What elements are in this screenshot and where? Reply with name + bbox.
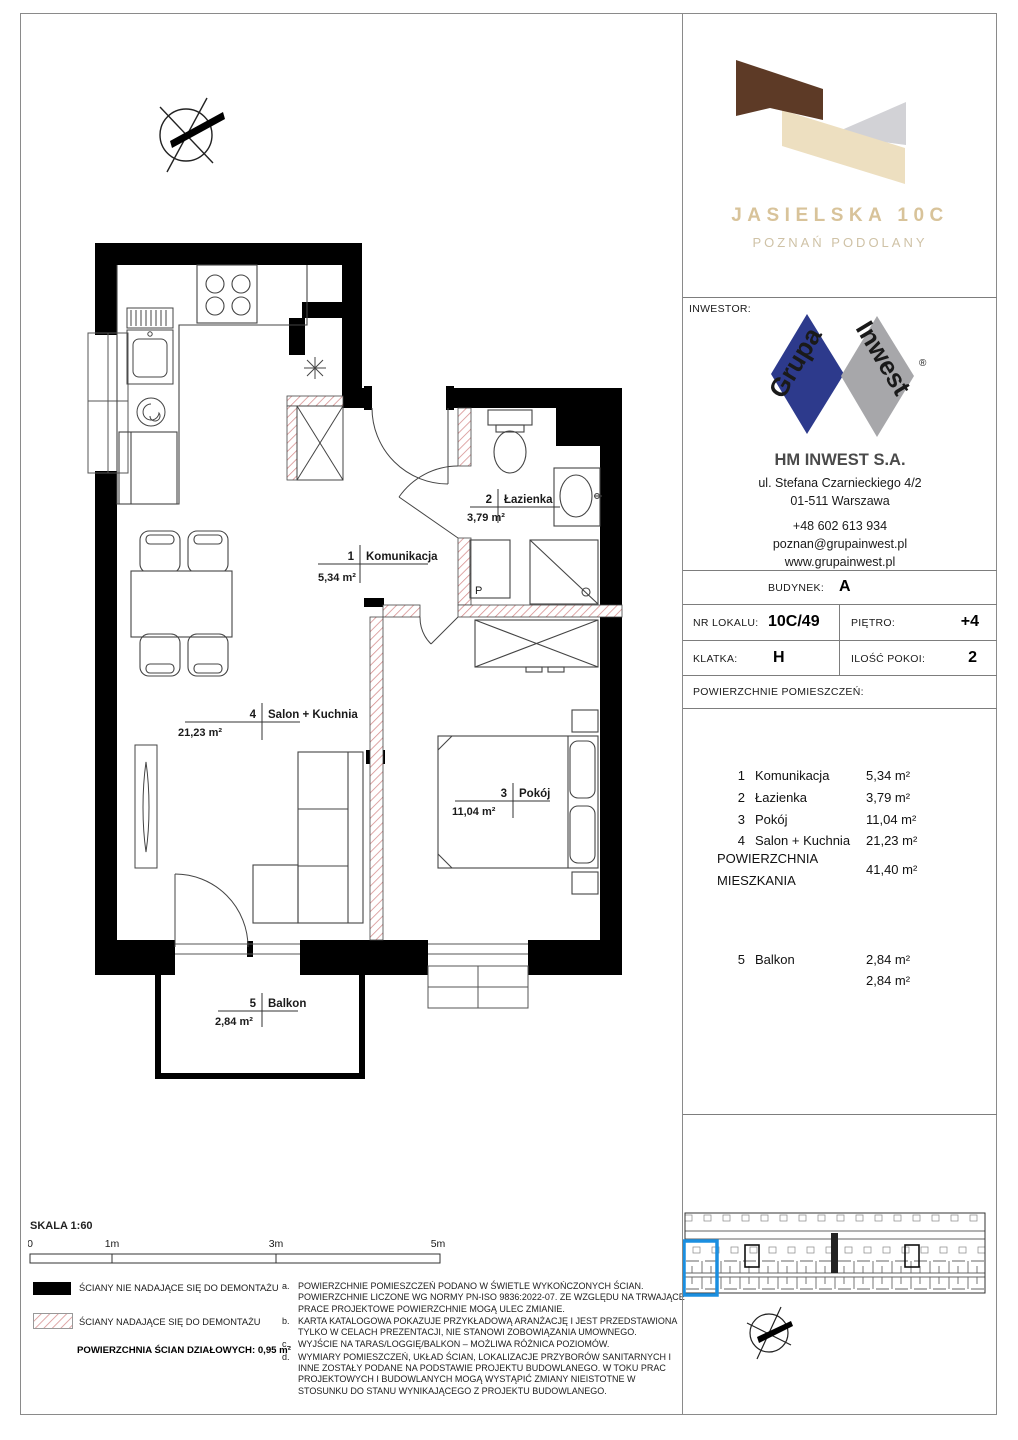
- nr-lokalu-label: NR LOKALU:: [693, 617, 758, 629]
- scale-label: SKALA 1:60: [30, 1220, 93, 1232]
- footnote-text: KARTA KATALOGOWA POKAZUJE PRZYKŁADOWĄ AR…: [298, 1316, 686, 1339]
- row-lokal-pietro: NR LOKALU: 10C/49 PIĘTRO: +4: [683, 604, 997, 640]
- label-komunikacja: 1 Komunikacja 5,34 m²: [318, 545, 438, 584]
- project-title: JASIELSKA 10C: [683, 205, 997, 227]
- wardrobe: [475, 620, 598, 672]
- footnote: a.POWIERZCHNIE POMIESZCZEŃ PODANO W ŚWIE…: [282, 1281, 686, 1315]
- balcony-row: 5Balkon 2,84 m²: [683, 952, 997, 967]
- legend-partition-label: POWIERZCHNIA ŚCIAN DZIAŁOWYCH: 0,95 m²: [77, 1345, 292, 1356]
- entry-wardrobe: [297, 406, 343, 480]
- legend-solid-swatch: [33, 1282, 71, 1295]
- info-column: JASIELSKA 10C POZNAŃ PODOLANY INWESTOR: …: [682, 13, 997, 1415]
- bed: [438, 710, 598, 894]
- plan-room-area: 2,84 m²: [215, 1016, 253, 1028]
- washing-machine-icon: P: [470, 540, 510, 598]
- room-no: 5: [683, 952, 755, 967]
- project-subtitle: POZNAŃ PODOLANY: [683, 235, 997, 250]
- plan-room-name: Pokój: [519, 788, 550, 800]
- scale-bar: 0 1m 3m 5m: [28, 1236, 448, 1268]
- walls-hatched: [287, 396, 622, 940]
- stove-icon: [197, 265, 257, 323]
- pietro-value: +4: [961, 613, 979, 631]
- row-klatka-pokoje: KLATKA: H ILOŚĆ POKOI: 2: [683, 640, 997, 675]
- room-area: 21,23 m²: [866, 833, 917, 848]
- klatka-label: KLATKA:: [693, 653, 738, 665]
- catalog-card: P 1 Komunikacja 5,34 m² 2 Łazienka 3,79 …: [0, 0, 1018, 1440]
- label-salon: 4 Salon + Kuchnia 21,23 m²: [178, 703, 358, 740]
- north-compass-icon: [160, 98, 225, 172]
- ilosc-pokoi-value: 2: [968, 649, 977, 667]
- room-area: 11,04 m²: [866, 812, 916, 827]
- room-no: 2: [683, 790, 755, 805]
- label-pokoj: 3 Pokój 11,04 m²: [452, 783, 550, 818]
- total-label-1: POWIERZCHNIA: [717, 851, 818, 866]
- room-list-row: 3Pokój 11,04 m²: [683, 812, 997, 827]
- ceiling-light-icon: [304, 357, 326, 379]
- plan-room-area: 3,79 m²: [467, 512, 505, 524]
- company-address-2: 01-511 Warszawa: [683, 494, 997, 508]
- scale-tick: 1m: [105, 1238, 120, 1250]
- legend-hatched-swatch: [33, 1313, 73, 1329]
- plan-room-name: Salon + Kuchnia: [268, 709, 358, 721]
- washbasin-icon: [554, 468, 602, 526]
- room-area: 2,84 m²: [866, 952, 910, 967]
- washer-letter: P: [475, 585, 482, 597]
- room-list-row: 1Komunikacja 5,34 m²: [683, 768, 997, 783]
- powierzchnie-label: POWIERZCHNIE POMIESZCZEŃ:: [693, 686, 864, 698]
- room-name: Salon + Kuchnia: [755, 833, 850, 848]
- company-address-1: ul. Stefana Czarnieckiego 4/2: [683, 476, 997, 490]
- rooms-section: 1Komunikacja 5,34 m² 2Łazienka 3,79 m² 3…: [683, 708, 997, 1114]
- inwestor-logo-icon: Grupa Inwest ®: [771, 314, 929, 444]
- building-overview-section: [683, 1114, 997, 1415]
- footnote: c.WYJŚCIE NA TARAS/LOGGIĘ/BALKON – MOŻLI…: [282, 1339, 686, 1350]
- plan-room-area: 5,34 m²: [318, 572, 356, 584]
- hob-icon: [137, 398, 165, 426]
- room-name: Balkon: [755, 952, 795, 967]
- toilet-icon: [488, 410, 532, 473]
- scale-tick: 5m: [431, 1238, 446, 1250]
- sofa: [253, 752, 363, 923]
- plan-room-no: 5: [250, 998, 257, 1010]
- sink-icon: [127, 308, 173, 384]
- room-no: 1: [683, 768, 755, 783]
- footnote: d.WYMIARY POMIESZCZEŃ, UKŁAD ŚCIAN, LOKA…: [282, 1352, 686, 1397]
- klatka-value: H: [773, 649, 785, 667]
- registered-mark: ®: [919, 358, 927, 369]
- building-mini-plan: [683, 1115, 990, 1415]
- row-budynek: BUDYNEK: A: [683, 570, 997, 604]
- plan-room-no: 3: [501, 788, 507, 800]
- room-no: 3: [683, 812, 755, 827]
- room-area: 5,34 m²: [866, 768, 910, 783]
- footnote-id: a.: [282, 1281, 298, 1315]
- footnote-id: d.: [282, 1352, 298, 1397]
- footnote-text: WYJŚCIE NA TARAS/LOGGIĘ/BALKON – MOŻLIWA…: [298, 1339, 609, 1350]
- company-email: poznan@grupainwest.pl: [683, 537, 997, 551]
- footnotes: a.POWIERZCHNIE POMIESZCZEŃ PODANO W ŚWIE…: [282, 1281, 686, 1398]
- label-lazienka: 2 Łazienka 3,79 m²: [467, 489, 560, 524]
- plan-room-name: Łazienka: [504, 494, 553, 506]
- inwestor-label: INWESTOR:: [689, 303, 751, 315]
- plan-room-no: 4: [250, 709, 257, 721]
- row-powierzchnie-header: POWIERZCHNIE POMIESZCZEŃ:: [683, 675, 997, 708]
- room-area: 3,79 m²: [866, 790, 910, 805]
- budynek-value: A: [839, 578, 851, 596]
- budynek-label: BUDYNEK:: [768, 582, 824, 594]
- dining-set: [131, 531, 232, 676]
- tv-icon: [135, 745, 157, 868]
- room-name: Komunikacja: [755, 768, 829, 783]
- balcony-outline: [158, 975, 362, 1076]
- plan-room-no: 2: [486, 494, 492, 506]
- project-logo-icon: [725, 58, 955, 193]
- plan-room-name: Balkon: [268, 998, 306, 1010]
- footnote-text: POWIERZCHNIE POMIESZCZEŃ PODANO W ŚWIETL…: [298, 1281, 686, 1315]
- footnote-id: c.: [282, 1339, 298, 1350]
- ilosc-pokoi-label: ILOŚĆ POKOI:: [851, 653, 925, 665]
- plan-room-area: 21,23 m²: [178, 727, 222, 739]
- total-area-value: 41,40 m²: [866, 862, 917, 877]
- pietro-label: PIĘTRO:: [851, 617, 895, 629]
- south-compass-icon: [747, 1307, 793, 1359]
- footnote-id: b.: [282, 1316, 298, 1339]
- company-name: HM INWEST S.A.: [683, 451, 997, 470]
- footnote: b.KARTA KATALOGOWA POKAZUJE PRZYKŁADOWĄ …: [282, 1316, 686, 1339]
- room-name: Łazienka: [755, 790, 807, 805]
- cell-divider: [839, 604, 840, 675]
- total-label-2: MIESZKANIA: [717, 873, 796, 888]
- scale-tick: 3m: [269, 1238, 284, 1250]
- plan-room-area: 11,04 m²: [452, 806, 496, 818]
- floor-plan: P 1 Komunikacja 5,34 m² 2 Łazienka 3,79 …: [85, 85, 650, 1090]
- plan-room-name: Komunikacja: [366, 551, 438, 563]
- company-website: www.grupainwest.pl: [683, 555, 997, 569]
- brand-section: JASIELSKA 10C POZNAŃ PODOLANY: [683, 13, 997, 297]
- scale-tick: 0: [28, 1238, 33, 1250]
- company-phone: +48 602 613 934: [683, 519, 997, 533]
- room-no: 4: [683, 833, 755, 848]
- legend-solid-label: ŚCIANY NIE NADAJĄCE SIĘ DO DEMONTAŻU: [79, 1283, 289, 1293]
- legend-hatched-label: ŚCIANY NADAJĄCE SIĘ DO DEMONTAŻU: [79, 1317, 289, 1327]
- inwestor-section: INWESTOR: Grupa Inwest ® HM INWEST S.A. …: [683, 297, 997, 570]
- room-name: Pokój: [755, 812, 788, 827]
- footnote-text: WYMIARY POMIESZCZEŃ, UKŁAD ŚCIAN, LOKALI…: [298, 1352, 686, 1397]
- label-balkon: 5 Balkon 2,84 m²: [215, 993, 306, 1028]
- shower-icon: [530, 540, 598, 604]
- nr-lokalu-value: 10C/49: [768, 613, 820, 631]
- balcony-total-value: 2,84 m²: [866, 973, 910, 988]
- room-list-row: 4Salon + Kuchnia 21,23 m²: [683, 833, 997, 848]
- plan-room-no: 1: [348, 551, 355, 563]
- room-list-row: 2Łazienka 3,79 m²: [683, 790, 997, 805]
